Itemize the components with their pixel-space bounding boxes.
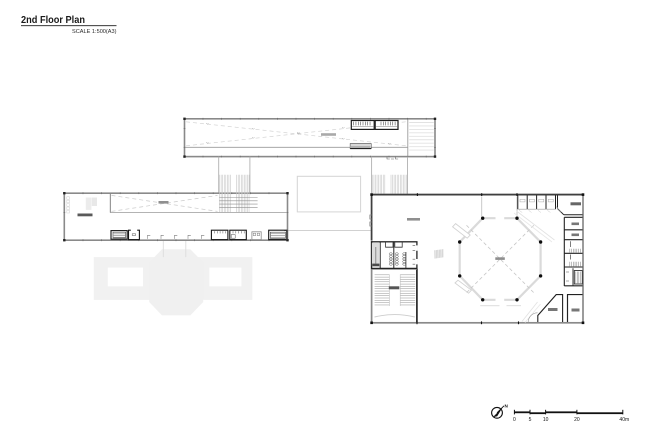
svg-text:N: N xyxy=(505,404,509,409)
svg-text:2nd Floor Plan: 2nd Floor Plan xyxy=(21,15,85,26)
svg-text:0: 0 xyxy=(513,417,516,423)
svg-text:10: 10 xyxy=(543,417,549,423)
svg-text:SCALE 1:500(A3): SCALE 1:500(A3) xyxy=(72,29,117,35)
svg-text:5: 5 xyxy=(529,417,532,423)
svg-text:40m: 40m xyxy=(619,417,629,423)
svg-text:20: 20 xyxy=(574,417,580,423)
